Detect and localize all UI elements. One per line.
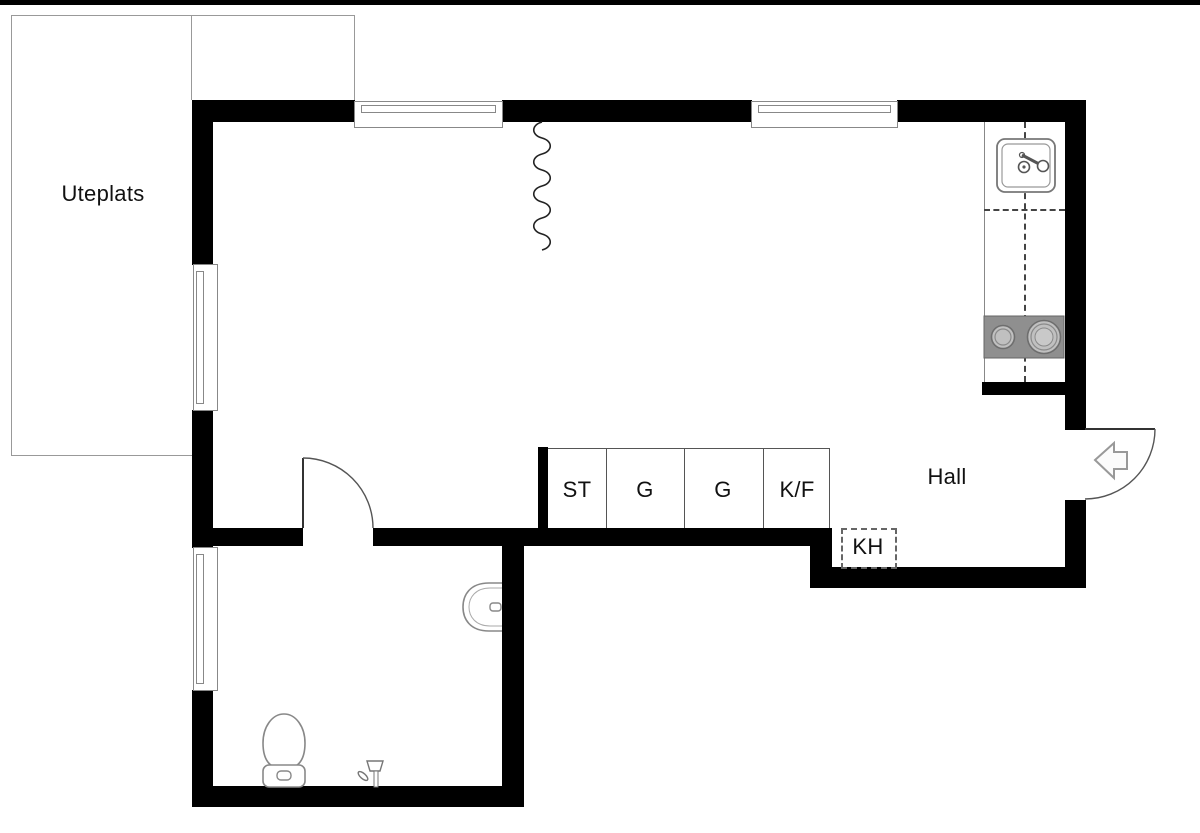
squiggle-line-icon [534,122,551,250]
room-label-uteplats: Uteplats [61,181,144,207]
kitchen-counter-dashed-centerline [1024,122,1026,382]
shower-tap-icon [357,761,383,787]
entry-arrow-icon [1095,443,1127,478]
wall-kitchen-bottom [982,382,1065,395]
toilet-icon [263,714,305,787]
window-left-living [193,264,218,411]
closet-divider-1 [606,448,607,528]
kitchen-counter-dashed-divider [984,209,1065,211]
closet-label-g2: G [714,477,731,503]
wall-top-segment-right [897,100,1085,122]
floor-plan: Uteplats Hall KH ST G G K/F [0,0,1200,833]
closet-row-right-line [829,448,830,528]
window-glazing [758,105,891,113]
kitchen-counter-edge [984,122,985,382]
entry-door-icon [1085,429,1155,499]
patio-outline-top [11,15,355,16]
wall-top-segment-left [192,100,355,122]
wall-hall-bottom [810,567,1085,588]
closet-row-top-line [548,448,830,449]
wall-right-segment-upper [1065,100,1086,430]
closet-label-g1: G [636,477,653,503]
wall-closet-row-right [373,528,830,546]
window-glazing [196,271,204,404]
fixtures-layer [0,0,1200,833]
window-left-bathroom [193,547,218,691]
patio-outline-right [354,15,355,100]
closet-label-kf: K/F [779,477,814,503]
wall-bathroom-bottom [192,786,524,807]
bathroom-door-icon [303,458,373,528]
patio-divider-line [191,15,192,100]
bathroom-sink-icon [463,583,502,631]
window-top-left [354,101,503,128]
closet-divider-2 [684,448,685,528]
window-top-right [751,101,898,128]
wall-left-segment-middle [192,410,213,548]
wall-bathroom-right [502,540,524,786]
label-kh: KH [852,534,883,560]
wall-left-segment-upper [192,100,213,265]
wall-closet-stub [538,447,548,530]
wall-top-segment-middle [502,100,752,122]
closet-divider-3 [763,448,764,528]
room-label-hall: Hall [927,464,966,490]
wall-closet-row-left [213,528,303,546]
closet-label-st: ST [563,477,592,503]
kitchen-sink-icon [997,139,1055,192]
patio-outline-left [11,15,12,456]
patio-outline-bottom [11,455,192,456]
window-glazing [196,554,204,684]
image-top-border [0,0,1200,5]
window-glazing [361,105,496,113]
